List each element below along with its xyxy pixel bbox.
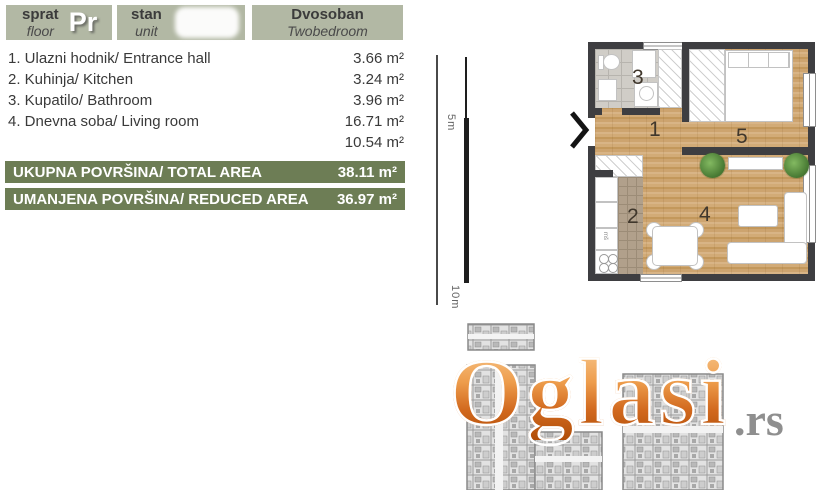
- reduced-area-value: 36.97 m²: [337, 191, 397, 208]
- floor-label-sr: sprat: [22, 7, 59, 23]
- room-number-bathroom: 3: [632, 66, 644, 90]
- watermark-tld: .rs: [734, 397, 784, 443]
- room-label: 2. Kuhinja/ Kitchen: [8, 69, 133, 90]
- toilet-icon: [603, 54, 620, 70]
- room-area: 10.54 m²: [345, 132, 404, 153]
- floor-labels: sprat floor: [22, 7, 59, 39]
- reduced-area-label: UMANJENA POVRŠINA/ REDUCED AREA: [13, 191, 309, 208]
- wall-top: [588, 42, 815, 49]
- unit-label-sr: stan: [131, 7, 162, 23]
- total-area-bar: UKUPNA POVRŠINA/ TOTAL AREA 38.11 m²: [5, 161, 405, 183]
- unit-label-en: unit: [135, 23, 158, 39]
- room-row-2: 2. Kuhinja/ Kitchen 3.24 m²: [8, 69, 404, 90]
- room-row-5: 10.54 m²: [8, 132, 404, 153]
- coffee-table: [738, 205, 778, 227]
- bath-sink: [598, 79, 617, 101]
- kitchen-sink: [595, 202, 618, 228]
- bottom-window: [640, 274, 682, 282]
- wall-left-upper: [588, 42, 595, 118]
- wall-right-2: [808, 127, 815, 165]
- kitchen-wall-stub: [595, 170, 613, 177]
- room-number-living-room: 4: [699, 203, 711, 227]
- watermark-brand: Oglasi: [450, 346, 730, 440]
- shower-niche: [658, 49, 682, 108]
- bath-wall: [622, 108, 660, 115]
- room-label: 1. Ulazni hodnik/ Entrance hall: [8, 48, 211, 69]
- kitchen-fridge: [595, 177, 618, 202]
- room-area: 3.24 m²: [353, 69, 404, 90]
- wall-bottom: [588, 274, 815, 281]
- room-row-1: 1. Ulazni hodnik/ Entrance hall 3.66 m²: [8, 48, 404, 69]
- room-area: 3.96 m²: [353, 90, 404, 111]
- room-row-3: 3. Kupatilo/ Bathroom 3.96 m²: [8, 90, 404, 111]
- plant-left-icon: [700, 153, 725, 178]
- header-type-cell: Dvosoban Twobedroom: [252, 5, 403, 40]
- scale-5m-label: 5m: [445, 114, 457, 131]
- wall-right-3: [808, 243, 815, 274]
- stove: [595, 250, 618, 274]
- floor-value: Pr: [69, 7, 98, 38]
- type-label-sr: Dvosoban: [291, 7, 364, 23]
- room-list: 1. Ulazni hodnik/ Entrance hall 3.66 m² …: [8, 48, 404, 153]
- total-area-value: 38.11 m²: [338, 164, 397, 181]
- bedroom-window: [803, 73, 816, 127]
- scale-bar-upper: [465, 57, 467, 118]
- kitchen-unit-label: mš: [602, 232, 608, 240]
- room-number-entrance-hall: 1: [649, 118, 661, 142]
- type-labels: Dvosoban Twobedroom: [287, 7, 368, 39]
- wall-left-lower: [588, 146, 595, 281]
- plant-right-icon: [784, 153, 809, 178]
- closet-wall: [682, 42, 689, 122]
- bath-wall-stub: [595, 108, 602, 115]
- room-area: 3.66 m²: [353, 48, 404, 69]
- apartment-floor-plan: mš 3 1 5 2 4: [588, 42, 815, 281]
- bed-pillows: [728, 52, 790, 68]
- unit-labels: stan unit: [131, 7, 162, 39]
- room-label: 4. Dnevna soba/ Living room: [8, 111, 199, 132]
- header-unit-cell: stan unit: [117, 5, 245, 40]
- scale-bar-lower: [464, 118, 469, 283]
- wall-right-1: [808, 42, 815, 73]
- room-row-4: 4. Dnevna soba/ Living room 16.71 m²: [8, 111, 404, 132]
- room-number-kitchen: 2: [627, 205, 639, 229]
- room-area: 16.71 m²: [345, 111, 404, 132]
- sofa-seat: [727, 242, 807, 264]
- entrance-arrow-icon: [569, 110, 591, 150]
- vertical-divider-line: [436, 55, 438, 305]
- total-area-label: UKUPNA POVRŠINA/ TOTAL AREA: [13, 164, 262, 181]
- dresser: [728, 157, 783, 170]
- unit-value-erased: [175, 7, 239, 38]
- type-label-en: Twobedroom: [287, 23, 368, 39]
- bedroom-wardrobe: [689, 49, 725, 122]
- scale-10m-label: 10m: [449, 285, 461, 309]
- header-floor-cell: sprat floor Pr: [6, 5, 112, 40]
- reduced-area-bar: UMANJENA POVRŠINA/ REDUCED AREA 36.97 m²: [5, 188, 405, 210]
- dining-table: [652, 226, 698, 266]
- room-number-bedroom: 5: [736, 125, 748, 149]
- room-label: 3. Kupatilo/ Bathroom: [8, 90, 152, 111]
- floor-label-en: floor: [27, 23, 54, 39]
